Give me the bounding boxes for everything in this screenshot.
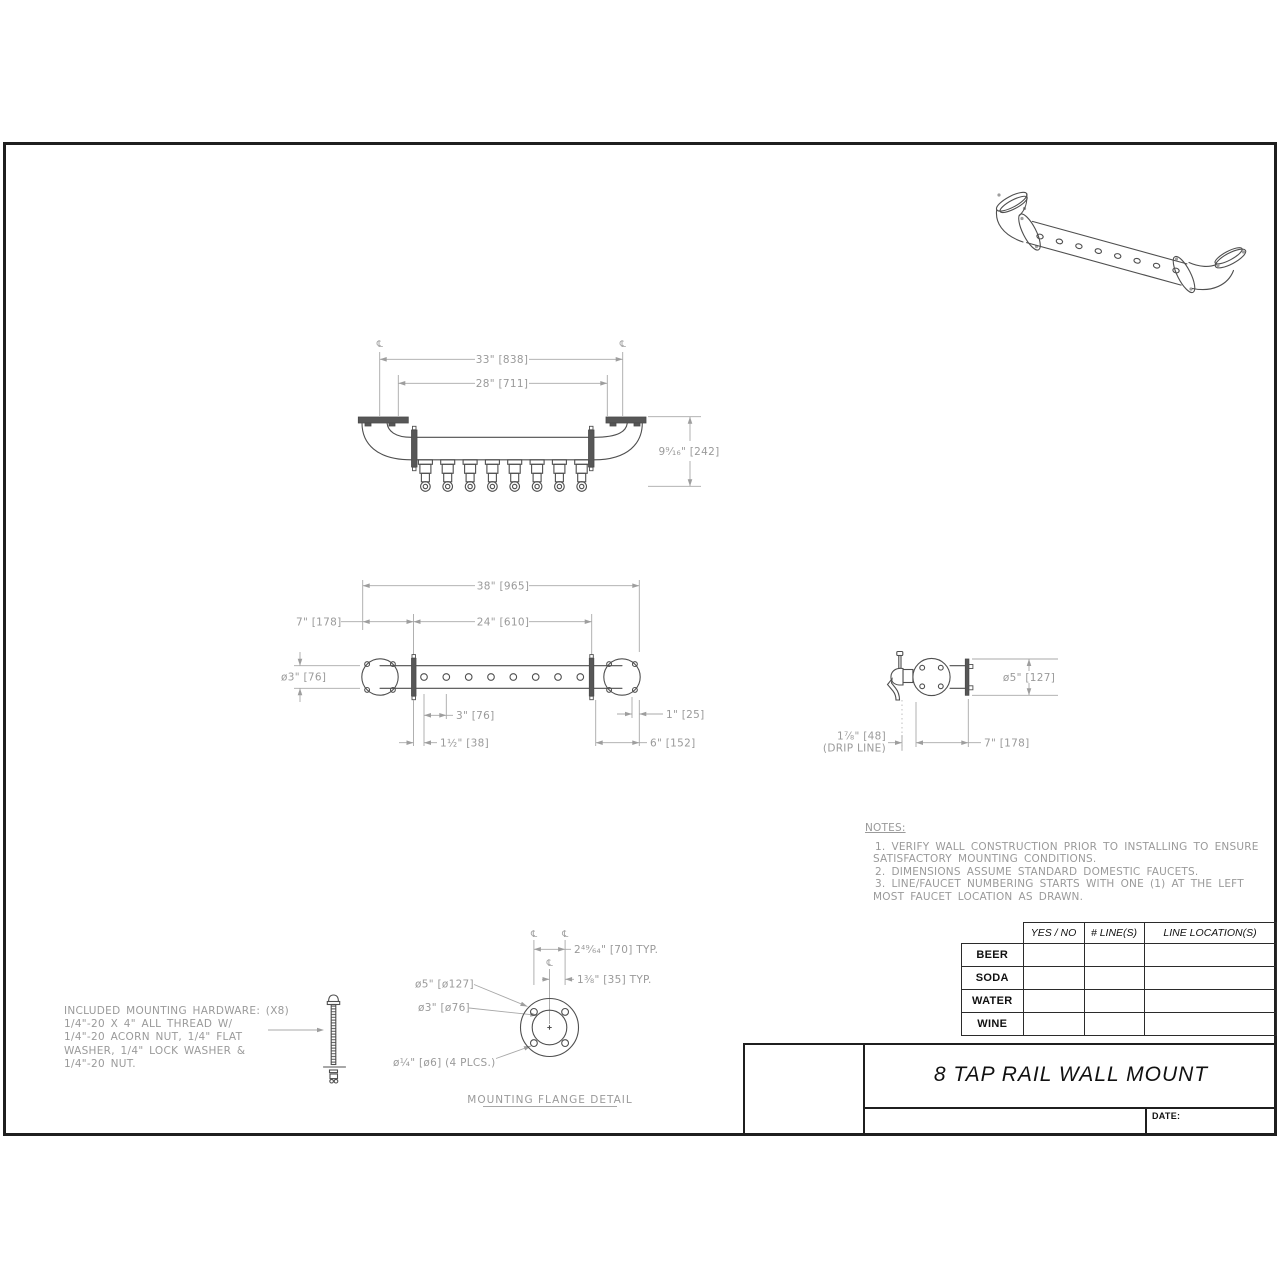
table-cell-empty <box>1144 1013 1276 1036</box>
note-line: 3. LINE/FAUCET NUMBERING STARTS WITH ONE… <box>865 878 1259 891</box>
dim-plan-overall: 38" [965] <box>477 581 529 593</box>
hardware-note-line: 1/4"-20 X 4" ALL THREAD W/ <box>64 1018 289 1031</box>
plan-view: 38" [965] 7" [178] 24" [610] ø3" [76] <box>281 580 705 750</box>
table-cell-empty <box>1023 944 1084 967</box>
note-line: 2. DIMENSIONS ASSUME STANDARD DOMESTIC F… <box>865 866 1259 879</box>
table-cell-empty <box>1144 944 1276 967</box>
dim-flange-outer-dia: ø5" [ø127] <box>415 979 474 991</box>
dim-side-drip-line: 1⅞" [48] <box>837 731 886 743</box>
tap-faucet <box>575 460 589 492</box>
row-label-beer: BEER <box>962 944 1024 967</box>
notes-block: NOTES: 1. VERIFY WALL CONSTRUCTION PRIOR… <box>865 822 1259 903</box>
centerline-symbol: ℄ <box>545 958 553 969</box>
hardware-note-line: WASHER, 1/4" LOCK WASHER & <box>64 1045 289 1058</box>
tap-rail-plan-geometry <box>362 655 640 700</box>
hardware-note-line: 1/4"-20 ACORN NUT, 1/4" FLAT <box>64 1031 289 1044</box>
dim-side-wall-offset: 7" [178] <box>984 738 1029 750</box>
acorn-nut <box>329 995 339 1002</box>
centerline-symbol: ℄ <box>530 929 538 940</box>
dim-front-inner: 28" [711] <box>476 378 528 390</box>
table-cell-empty <box>1084 967 1144 990</box>
tap-faucet <box>485 460 499 492</box>
dim-front-height: 9⁹⁄₁₆" [242] <box>658 446 719 458</box>
tap-faucet <box>463 460 477 492</box>
faucet-side <box>888 652 913 701</box>
dim-flange-bolt-offset: 1⅜" [35] TYP. <box>577 974 652 986</box>
hex-nut <box>330 1074 338 1079</box>
front-elevation-view: ℄ ℄ 33" [838] 28" [711] 9⁹⁄₁₆" [242] <box>358 339 719 491</box>
dim-flange-bolt-spacing: 2⁴⁹⁄₆₄" [70] TYP. <box>574 944 658 956</box>
table-cell-empty <box>1144 967 1276 990</box>
mounting-flange-detail: ℄ ℄ ℄ 2⁴⁹⁄₆₄" [70] TYP. 1⅜" [35] TYP. ø5… <box>393 929 658 1107</box>
tap-faucet <box>441 460 455 492</box>
notes-heading: NOTES: <box>865 822 1259 835</box>
table-corner-blank <box>962 923 1024 944</box>
dim-plan-first-offset: 1½" [38] <box>440 738 489 750</box>
dim-plan-spacing: 3" [76] <box>456 710 495 722</box>
centerline-symbol: ℄ <box>619 339 627 350</box>
centerline-symbol: ℄ <box>561 929 569 940</box>
row-label-wine: WINE <box>962 1013 1024 1036</box>
dim-plan-left-offset: 7" [178] <box>296 617 341 629</box>
table-header-yes-no: YES / NO <box>1023 923 1084 944</box>
dim-plan-tube-dia: ø3" [76] <box>281 672 326 684</box>
table-header-line-locations: LINE LOCATION(S) <box>1144 923 1276 944</box>
line-configuration-table: YES / NO # LINE(S) LINE LOCATION(S) BEER… <box>961 922 1277 1036</box>
tap-rail-side-geometry <box>888 652 973 753</box>
flange-detail-caption: MOUNTING FLANGE DETAIL <box>467 1094 632 1106</box>
centerline-symbol: ℄ <box>376 339 384 350</box>
dim-front-overall: 33" [838] <box>476 354 528 366</box>
tap-faucet <box>530 460 544 492</box>
row-label-soda: SODA <box>962 967 1024 990</box>
table-cell-empty <box>1084 1013 1144 1036</box>
title-block-divider <box>863 1107 1277 1109</box>
side-view: ø5" [127] 1⅞" [48] (DRIP LINE) 7" [178] <box>823 652 1058 755</box>
table-cell-empty <box>1084 990 1144 1013</box>
note-line: 1. VERIFY WALL CONSTRUCTION PRIOR TO INS… <box>865 841 1259 854</box>
tap-faucet <box>508 460 522 492</box>
dim-flange-bolt-holes: ø¼" [ø6] (4 PLCS.) <box>393 1057 496 1069</box>
dim-plan-center: 24" [610] <box>477 617 529 629</box>
tap-rail-front-geometry <box>358 417 646 491</box>
lock-washer <box>330 1070 338 1073</box>
dim-side-flange-dia: ø5" [127] <box>1003 672 1055 684</box>
dim-side-drip-line-caption: (DRIP LINE) <box>823 743 886 755</box>
tap-faucet <box>552 460 566 492</box>
date-label: DATE: <box>1152 1111 1180 1121</box>
table-cell-empty <box>1144 990 1276 1013</box>
dim-flange-tube-dia: ø3" [ø76] <box>418 1002 470 1014</box>
note-line: MOST FAUCET LOCATION AS DRAWN. <box>865 891 1259 904</box>
table-cell-empty <box>1023 990 1084 1013</box>
table-header-num-lines: # LINE(S) <box>1084 923 1144 944</box>
row-label-water: WATER <box>962 990 1024 1013</box>
dim-plan-flange: 6" [152] <box>650 738 695 750</box>
table-cell-empty <box>1084 944 1144 967</box>
title-block-divider <box>1145 1107 1147 1136</box>
hardware-note-line: INCLUDED MOUNTING HARDWARE: (X8) <box>64 1005 289 1018</box>
hardware-note-line: 1/4"-20 NUT. <box>64 1058 289 1071</box>
hardware-note-block: INCLUDED MOUNTING HARDWARE: (X8) 1/4"-20… <box>64 1005 289 1071</box>
isometric-view <box>994 189 1248 295</box>
tap-faucet <box>418 460 432 492</box>
table-cell-empty <box>1023 967 1084 990</box>
table-cell-empty <box>1023 1013 1084 1036</box>
drawing-title: 8 TAP RAIL WALL MOUNT <box>865 1043 1277 1107</box>
drawing-sheet: ℄ ℄ 33" [838] 28" [711] 9⁹⁄₁₆" [242] <box>0 0 1280 1280</box>
note-line: SATISFACTORY MOUNTING CONDITIONS. <box>865 853 1259 866</box>
dim-plan-end: 1" [25] <box>666 709 705 721</box>
